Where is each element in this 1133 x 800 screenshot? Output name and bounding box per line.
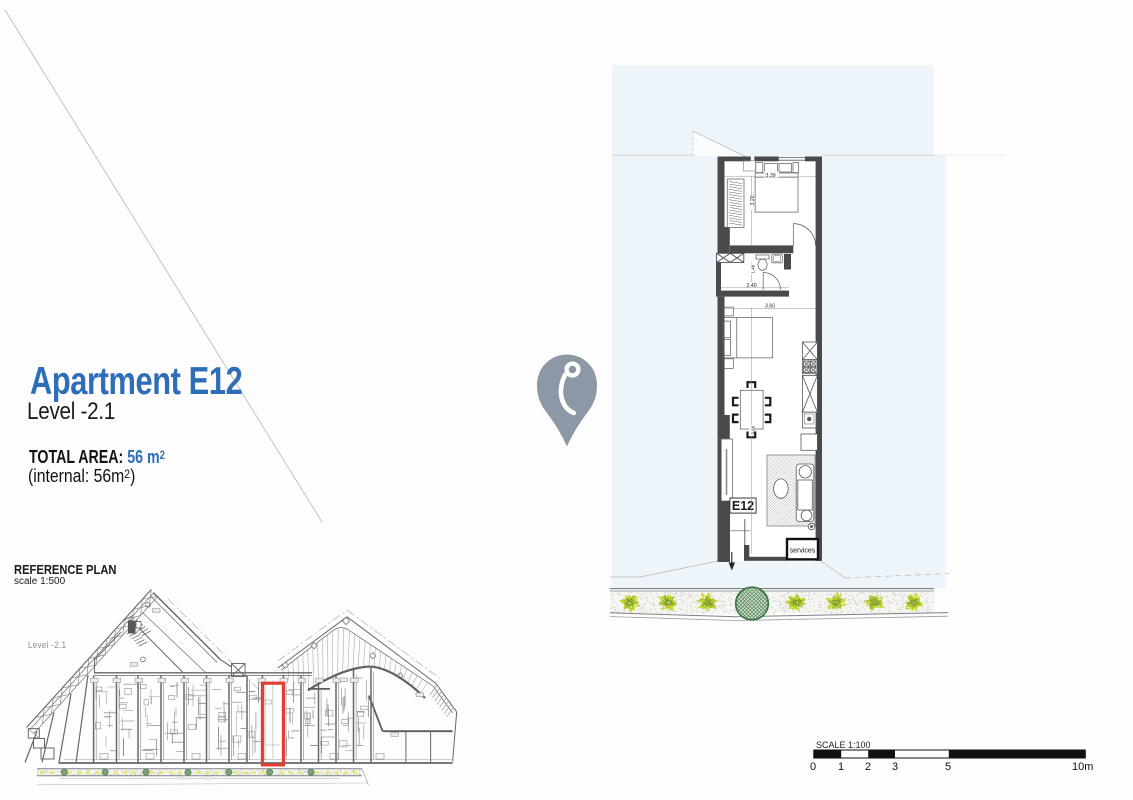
- svg-text:1.48: 1.48: [751, 264, 756, 273]
- svg-text:9.66: 9.66: [751, 425, 756, 434]
- svg-text:2.40: 2.40: [747, 283, 757, 289]
- svg-text:3.60: 3.60: [765, 303, 775, 309]
- svg-text:services: services: [790, 546, 816, 555]
- svg-text:3.20: 3.20: [750, 195, 756, 205]
- svg-text:E12: E12: [732, 499, 754, 513]
- svg-text:3.39: 3.39: [766, 173, 776, 179]
